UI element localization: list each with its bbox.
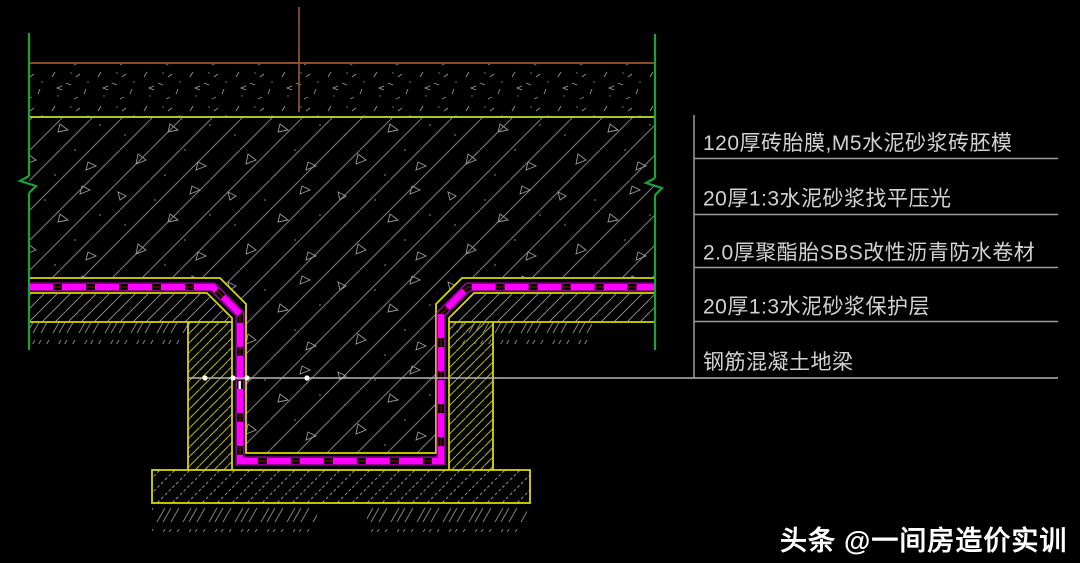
layer-label-3: 2.0厚聚酯胎SBS改性沥青防水卷材 xyxy=(703,242,1035,265)
watermark-handle: @一间房造价实训 xyxy=(844,526,1067,556)
centerline-dot xyxy=(202,375,207,380)
ground-beam-waterproofing-section-drawing: 120厚砖胎膜,M5水泥砂浆砖胚模 20厚1:3水泥砂浆找平压光 2.0厚聚酯胎… xyxy=(0,0,1080,563)
centerline-dot xyxy=(244,375,249,380)
layer-label-5: 钢筋混凝土地梁 xyxy=(703,351,854,374)
centerline-dot xyxy=(230,375,235,380)
centerline-dot xyxy=(304,375,309,380)
top-slab-speckle-band xyxy=(29,64,655,116)
layer-label-1: 120厚砖胎膜,M5水泥砂浆砖胚模 xyxy=(703,132,1013,155)
layer-label-2: 20厚1:3水泥砂浆找平压光 xyxy=(703,188,952,211)
watermark: 头条@一间房造价实训 xyxy=(780,519,1067,558)
brick-formwork-wall-right xyxy=(449,322,493,470)
cad-canvas: 120厚砖胎膜,M5水泥砂浆砖胚模 20厚1:3水泥砂浆找平压光 2.0厚聚酯胎… xyxy=(0,0,1080,563)
footing-slab xyxy=(152,470,530,503)
brick-formwork-wall-left xyxy=(188,322,232,470)
layer-label-4: 20厚1:3水泥砂浆保护层 xyxy=(703,296,930,319)
watermark-brand: 头条 xyxy=(780,526,836,556)
